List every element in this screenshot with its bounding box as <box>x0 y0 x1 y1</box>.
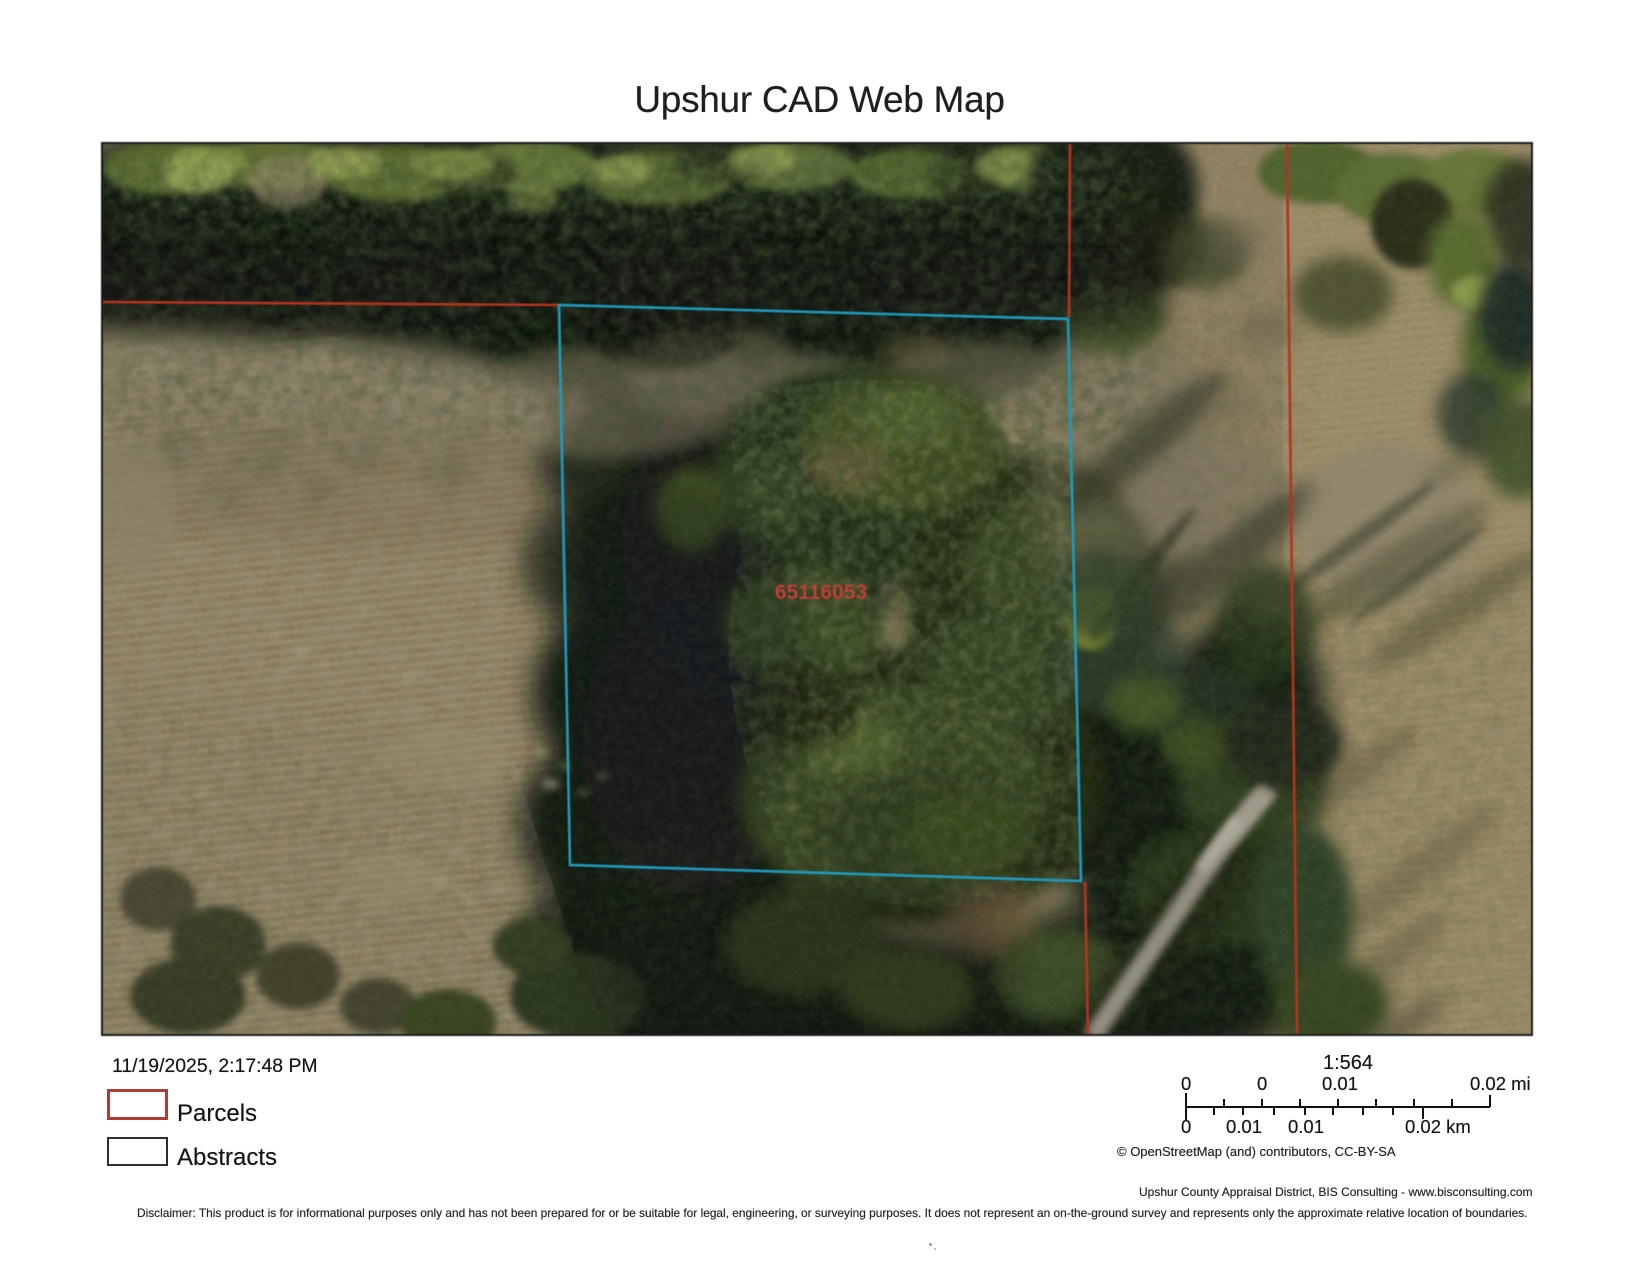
svg-text:65116053: 65116053 <box>775 581 867 604</box>
